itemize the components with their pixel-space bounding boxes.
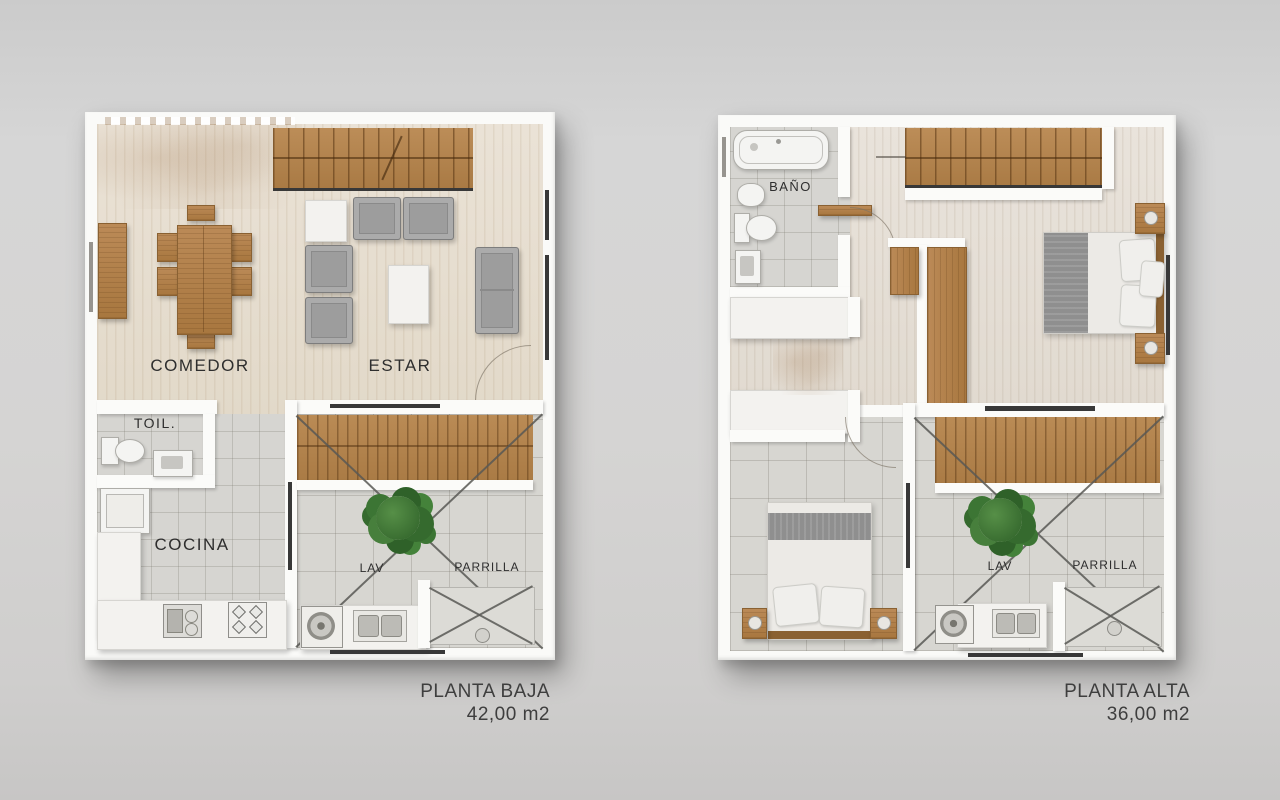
floorplan-planta-alta: BAÑO [718, 115, 1176, 660]
hall-cabinet [730, 390, 850, 434]
armchair [353, 197, 401, 240]
caption-planta-alta: PLANTA ALTA 36,00 m2 [990, 680, 1190, 726]
bathroom-wall [838, 127, 850, 197]
hall-wall [848, 297, 860, 337]
window [1166, 255, 1170, 355]
window-over-terrace [985, 406, 1095, 411]
sink-bowl [996, 613, 1015, 634]
sink-bowl [358, 615, 379, 637]
plan-title: PLANTA ALTA [990, 680, 1190, 703]
sink-bowl [185, 623, 198, 636]
tub-basin [940, 610, 967, 637]
window [89, 242, 93, 312]
dining-chair [231, 233, 252, 262]
plan-area: 36,00 m2 [990, 703, 1190, 726]
window-over-patio [330, 404, 440, 408]
caption-planta-baja: PLANTA BAJA 42,00 m2 [350, 680, 550, 726]
plan-area: 42,00 m2 [350, 703, 550, 726]
sofa [475, 247, 519, 334]
sink-basin [740, 256, 754, 276]
floorplan-planta-baja: TOIL. COCINA [85, 112, 555, 660]
dining-chair [157, 233, 178, 262]
sink [153, 450, 193, 477]
scene-background: TOIL. COCINA [0, 0, 1280, 800]
room-label-lav: LAV [337, 561, 407, 575]
room-label-comedor: COMEDOR [140, 356, 260, 376]
hall-cabinet [730, 297, 850, 339]
plant-pot [1144, 341, 1158, 355]
tree [376, 496, 420, 540]
kitchen-sink [163, 604, 202, 638]
staircase [905, 128, 1102, 188]
handrail [876, 156, 906, 158]
dining-chair [157, 267, 178, 296]
sofa-cushion-seam [480, 289, 514, 291]
plant-pot [877, 616, 891, 630]
window [722, 137, 726, 177]
wardrobe [890, 247, 919, 295]
room-label-lav: LAV [965, 559, 1035, 573]
bed [1043, 232, 1165, 334]
interior-wall [97, 400, 217, 414]
sideboard [98, 223, 127, 319]
deck-edge-wall [297, 480, 533, 490]
staircase [273, 128, 473, 188]
nightstand [1135, 203, 1165, 234]
laundry-tub [935, 605, 974, 644]
drain [475, 628, 490, 643]
nightstand [870, 608, 897, 639]
parrilla-wall-stub [1053, 582, 1065, 651]
room-label-cocina: COCINA [132, 535, 252, 555]
bathtub-faucet [776, 139, 781, 144]
coffee-table [388, 265, 429, 324]
dining-chair [187, 333, 215, 349]
faded-area [97, 124, 302, 209]
deck-handrail [297, 445, 533, 447]
toilet-wall [203, 414, 215, 475]
dining-table [177, 225, 232, 335]
window [545, 255, 549, 360]
sink-bowl [167, 609, 183, 633]
storage-inner [106, 494, 144, 528]
stair-landing-seam [905, 157, 1102, 159]
toilet [746, 215, 777, 241]
deck-edge-wall [935, 483, 1160, 493]
plant-pot [748, 616, 762, 630]
ottoman [305, 200, 347, 242]
plant-pot [1144, 211, 1158, 225]
bed [767, 502, 872, 640]
eroded-wall-texture [105, 117, 295, 125]
window [968, 653, 1083, 657]
double-sink [992, 609, 1040, 638]
pillow [772, 583, 820, 627]
armchair [305, 297, 353, 344]
stair-side-wall [1102, 127, 1114, 189]
sliding-door [906, 483, 910, 568]
floor-smudge [773, 340, 843, 395]
bidet [737, 183, 765, 207]
bed-runner [1044, 233, 1088, 333]
parrilla-wall-stub [418, 580, 430, 648]
stair-wall [905, 188, 1102, 200]
bed-runner [768, 513, 871, 540]
burner-icon [232, 605, 246, 619]
nightstand [1135, 333, 1165, 364]
stair-landing-seam [273, 157, 473, 159]
room-label-parrilla: PARRILLA [1045, 558, 1165, 572]
pillow [819, 586, 866, 629]
bathtub [733, 130, 829, 170]
nightstand [742, 608, 767, 639]
double-sink [353, 610, 407, 642]
toilet [115, 439, 145, 463]
storage-unit [100, 488, 150, 534]
plan-title: PLANTA BAJA [350, 680, 550, 703]
dining-chair [187, 205, 215, 221]
sliding-door [288, 482, 292, 570]
burner-icon [249, 620, 263, 634]
tub-basin [307, 612, 335, 640]
window [545, 190, 549, 240]
stair-edge [273, 188, 473, 191]
burner-icon [249, 605, 263, 619]
interior-wall [730, 430, 845, 442]
wardrobe [927, 247, 967, 404]
drain [1107, 621, 1122, 636]
burner-icon [232, 620, 246, 634]
sink-bowl [1017, 613, 1036, 634]
armchair [305, 245, 353, 293]
pillow [1138, 260, 1165, 298]
table-seam [203, 226, 204, 332]
bathtub-drain [750, 143, 758, 151]
sink-bowl [185, 610, 198, 623]
laundry-tub [301, 606, 343, 648]
sink [735, 250, 761, 284]
room-label-toil: TOIL. [113, 415, 197, 431]
sink-bowl [381, 615, 402, 637]
room-label-estar: ESTAR [340, 356, 460, 376]
headboard [768, 631, 871, 639]
sink-basin [161, 456, 183, 469]
tree [978, 498, 1022, 542]
bathroom-wall [838, 235, 850, 287]
window [330, 650, 445, 654]
dining-chair [231, 267, 252, 296]
room-label-parrilla: PARRILLA [427, 560, 547, 574]
cooktop [228, 602, 267, 638]
armchair [403, 197, 454, 240]
